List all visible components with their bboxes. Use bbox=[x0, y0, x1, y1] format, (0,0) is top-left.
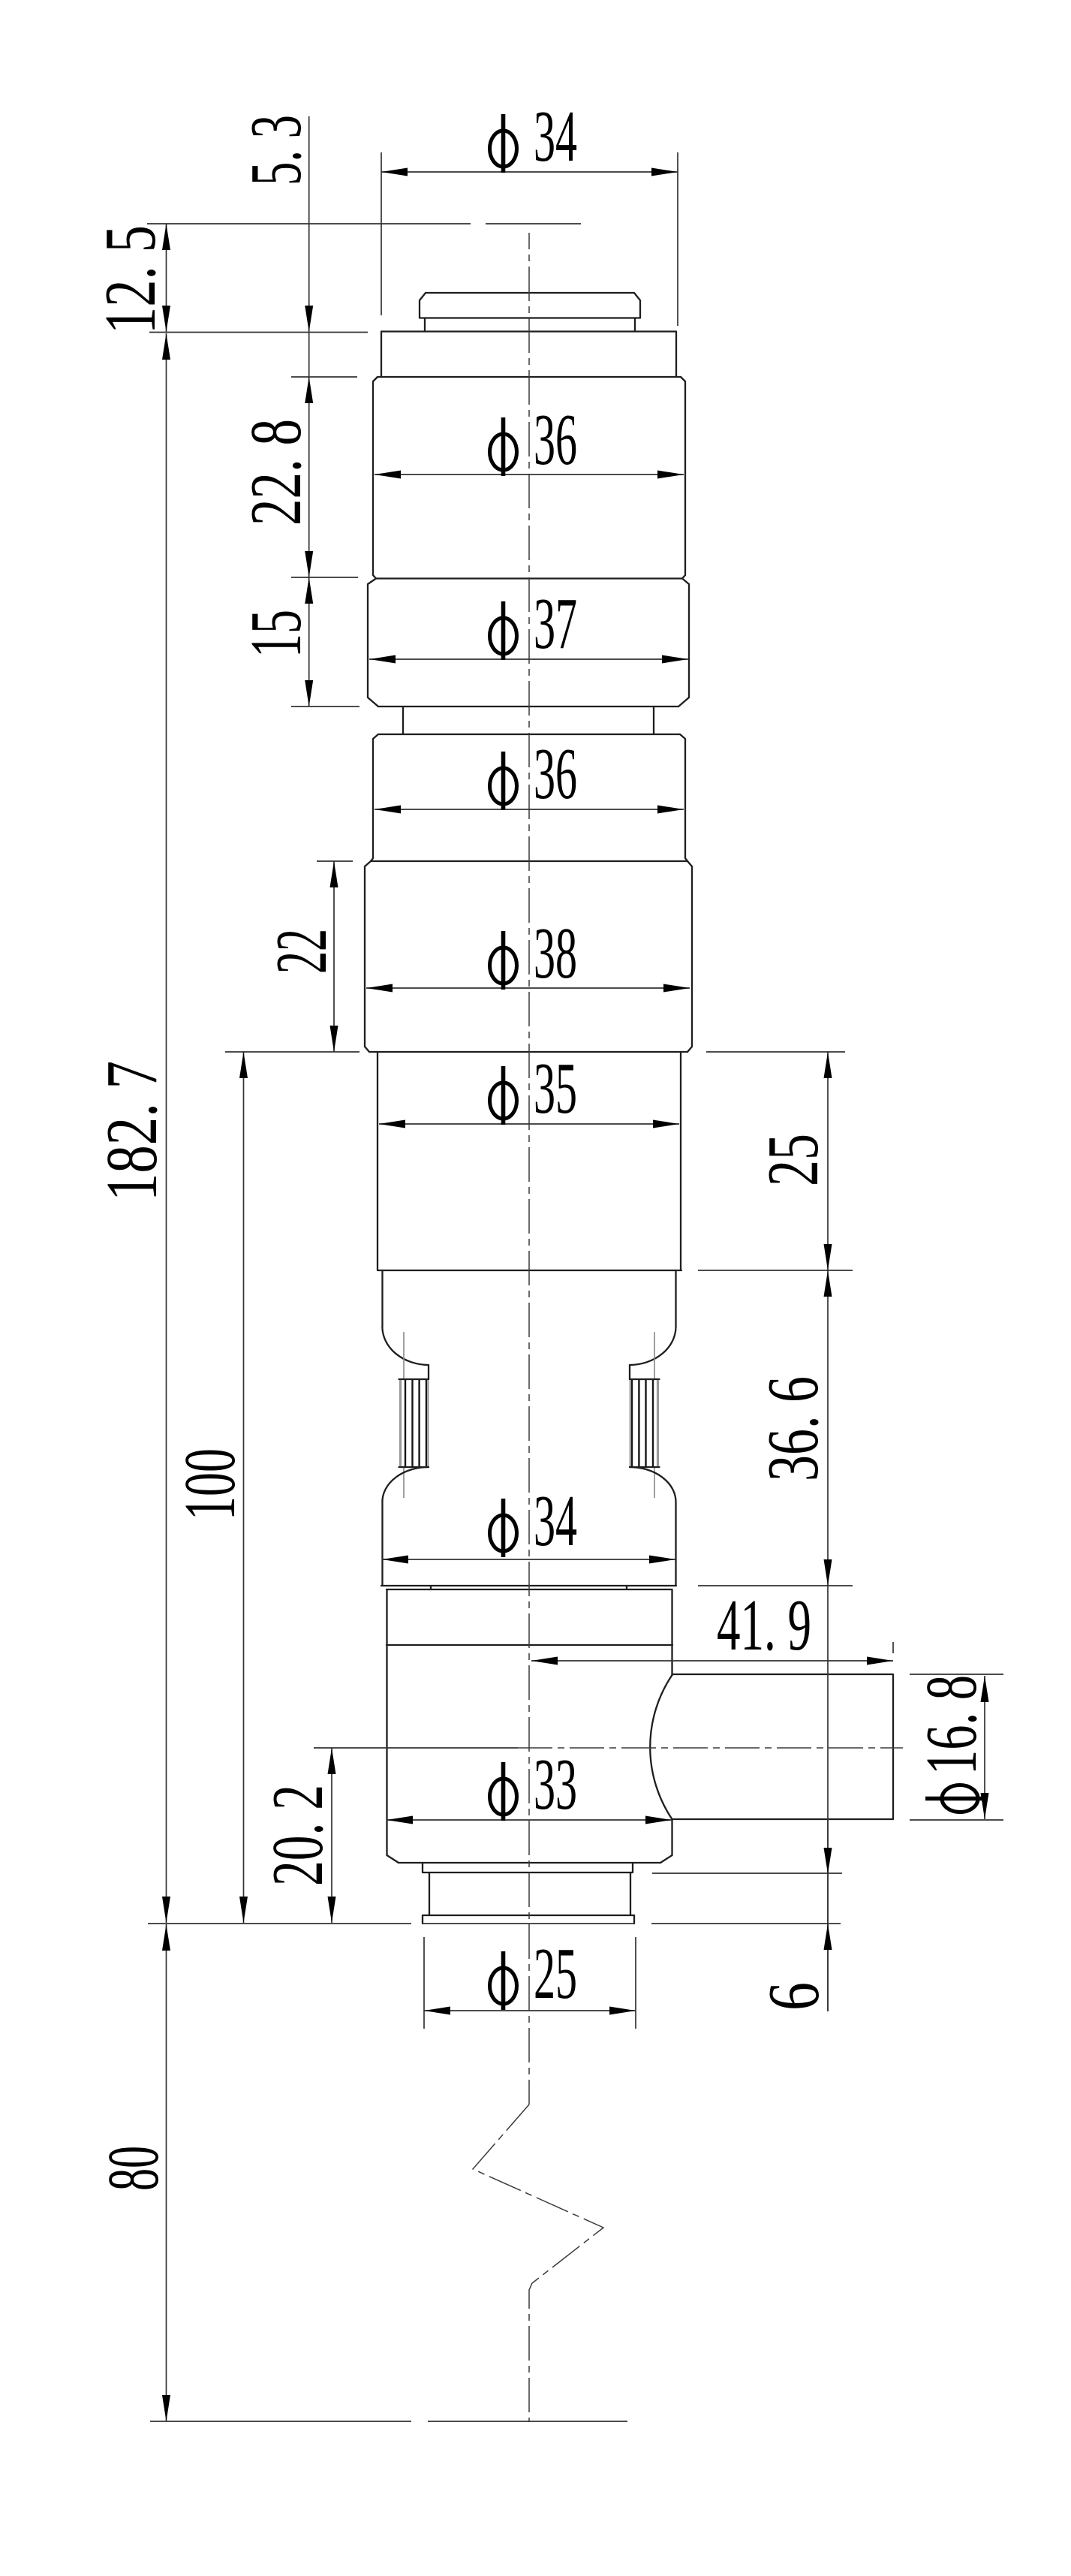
svg-text:22. 8: 22. 8 bbox=[236, 419, 316, 526]
svg-text:12. 5: 12. 5 bbox=[90, 225, 170, 334]
svg-text:33: 33 bbox=[534, 1744, 577, 1824]
svg-text:20. 2: 20. 2 bbox=[257, 1785, 338, 1886]
svg-text:35: 35 bbox=[534, 1048, 577, 1128]
svg-text:25: 25 bbox=[753, 1134, 833, 1186]
svg-text:16. 8: 16. 8 bbox=[911, 1675, 991, 1775]
svg-text:5. 3: 5. 3 bbox=[236, 115, 316, 185]
svg-text:38: 38 bbox=[534, 913, 577, 993]
svg-text:182. 7: 182. 7 bbox=[92, 1061, 172, 1201]
svg-text:34: 34 bbox=[534, 96, 577, 176]
svg-text:36: 36 bbox=[534, 399, 577, 480]
svg-text:34: 34 bbox=[534, 1481, 577, 1561]
svg-text:36: 36 bbox=[534, 734, 577, 814]
svg-text:37: 37 bbox=[534, 583, 577, 664]
svg-text:36. 6: 36. 6 bbox=[753, 1376, 833, 1481]
svg-text:100: 100 bbox=[170, 1448, 250, 1520]
svg-text:6: 6 bbox=[754, 1982, 834, 2011]
svg-text:25: 25 bbox=[534, 1933, 577, 2014]
svg-text:41. 9: 41. 9 bbox=[717, 1585, 811, 1665]
svg-text:80: 80 bbox=[93, 2146, 173, 2191]
svg-text:22: 22 bbox=[261, 929, 341, 974]
svg-text:15: 15 bbox=[236, 610, 316, 658]
